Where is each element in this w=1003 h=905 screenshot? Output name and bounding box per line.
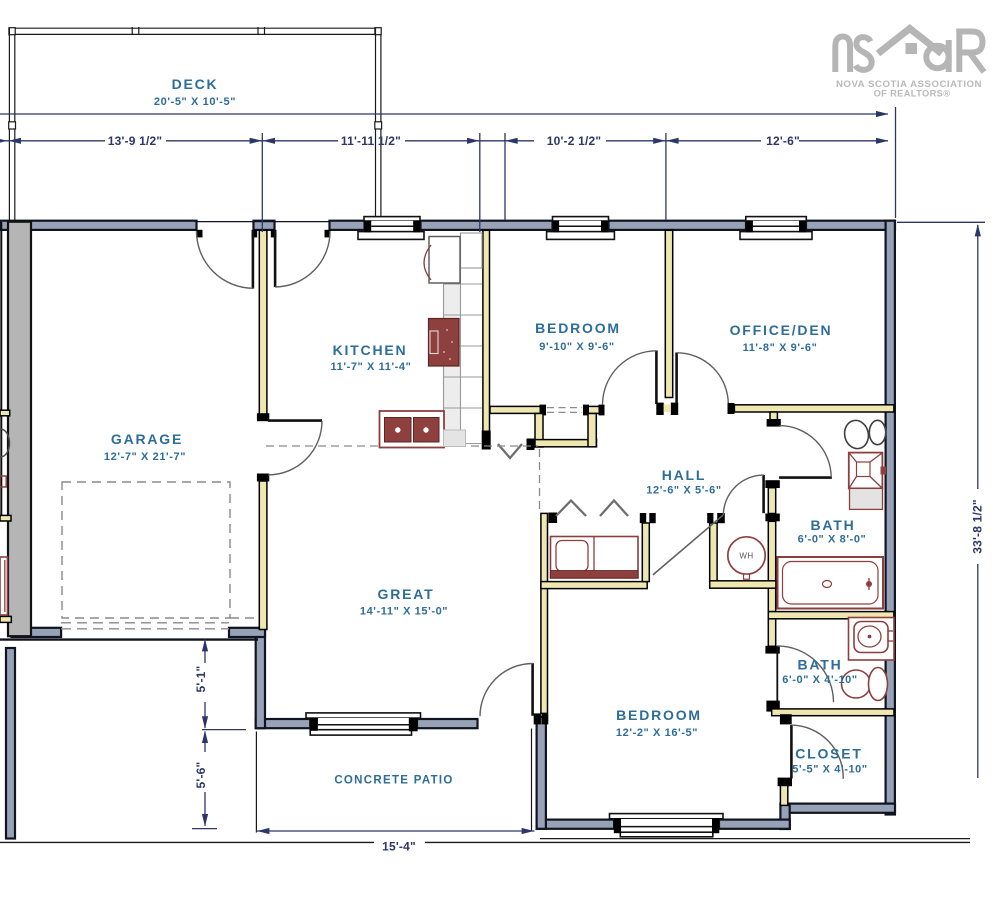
svg-text:HALL: HALL: [662, 467, 707, 483]
svg-text:BATH: BATH: [810, 517, 855, 533]
svg-text:GARAGE: GARAGE: [111, 431, 183, 447]
svg-text:5'-6": 5'-6": [194, 762, 208, 789]
svg-text:11'-11 1/2": 11'-11 1/2": [341, 134, 401, 148]
svg-text:CONCRETE PATIO: CONCRETE PATIO: [334, 775, 453, 787]
svg-text:KITCHEN: KITCHEN: [333, 342, 408, 358]
svg-text:WH: WH: [739, 552, 753, 561]
svg-text:20'-5" X 10'-5": 20'-5" X 10'-5": [154, 96, 236, 108]
svg-text:9'-10" X 9'-6": 9'-10" X 9'-6": [539, 341, 614, 353]
svg-text:CLOSET: CLOSET: [795, 746, 863, 762]
svg-text:33'-8 1/2": 33'-8 1/2": [971, 499, 985, 554]
svg-text:6'-0" X 8'-0": 6'-0" X 8'-0": [798, 534, 867, 546]
svg-text:GREAT: GREAT: [378, 586, 435, 602]
svg-text:BEDROOM: BEDROOM: [616, 707, 702, 723]
svg-text:5'-1": 5'-1": [194, 666, 208, 693]
svg-text:11'-8" X 9'-6": 11'-8" X 9'-6": [743, 342, 818, 354]
svg-text:12'-2" X 16'-5": 12'-2" X 16'-5": [616, 727, 698, 739]
svg-text:BEDROOM: BEDROOM: [535, 320, 621, 336]
svg-text:OF REALTORS®: OF REALTORS®: [874, 89, 951, 99]
svg-text:15'-4": 15'-4": [382, 840, 416, 854]
svg-text:DECK: DECK: [172, 76, 219, 92]
svg-text:OFFICE/DEN: OFFICE/DEN: [730, 322, 833, 338]
svg-text:11'-7" X 11'-4": 11'-7" X 11'-4": [331, 361, 412, 373]
svg-text:14'-11" X 15'-0": 14'-11" X 15'-0": [360, 606, 448, 618]
svg-text:BATH: BATH: [797, 657, 842, 673]
svg-text:10'-2 1/2": 10'-2 1/2": [547, 134, 602, 148]
svg-text:12'-6" X 5'-6": 12'-6" X 5'-6": [646, 485, 721, 497]
svg-text:6'-0" X 4'-10": 6'-0" X 4'-10": [782, 674, 857, 686]
svg-text:5'-5" X 4'-10": 5'-5" X 4'-10": [792, 764, 867, 776]
svg-text:12'-6": 12'-6": [766, 134, 800, 148]
svg-text:13'-9 1/2": 13'-9 1/2": [108, 134, 163, 148]
svg-text:12'-7" X 21'-7": 12'-7" X 21'-7": [104, 451, 186, 463]
